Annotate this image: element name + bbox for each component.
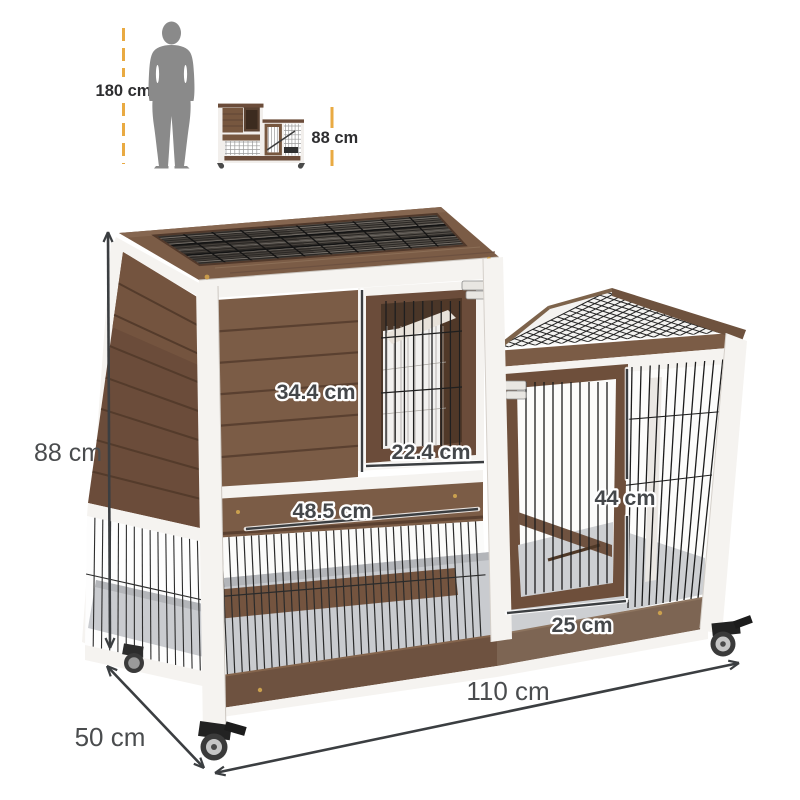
svg-text:34.4 cm: 34.4 cm (277, 380, 356, 404)
svg-text:88 cm: 88 cm (34, 439, 102, 467)
svg-text:48.5 cm: 48.5 cm (293, 499, 372, 523)
svg-text:88 cm: 88 cm (311, 129, 358, 147)
svg-text:22.4 cm: 22.4 cm (392, 440, 471, 464)
svg-text:25 cm: 25 cm (552, 613, 613, 637)
svg-text:110 cm: 110 cm (466, 676, 549, 706)
svg-text:180 cm: 180 cm (96, 82, 152, 100)
svg-text:44 cm: 44 cm (595, 486, 656, 510)
svg-text:50 cm: 50 cm (75, 722, 146, 752)
